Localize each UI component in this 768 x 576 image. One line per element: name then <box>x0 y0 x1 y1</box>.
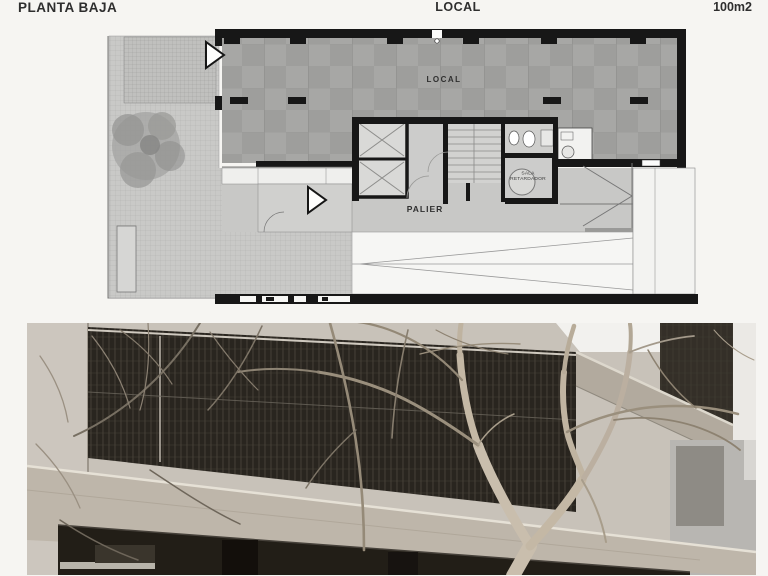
drawing-surface <box>0 0 768 576</box>
core-right-wall <box>553 117 558 160</box>
room-label-sala: SALA RETARDADOR <box>504 171 552 182</box>
room-label-local: LOCAL <box>418 75 470 84</box>
plan-area: 100m2 <box>713 0 752 16</box>
street-wall <box>215 294 698 304</box>
column-circle <box>435 39 439 43</box>
plan-subtitle: LOCAL <box>398 0 518 16</box>
building-photo <box>27 322 756 576</box>
plan-title: PLANTA BAJA <box>18 0 117 16</box>
planter <box>117 226 136 292</box>
canopy-hatch-area <box>124 37 216 103</box>
right-bay <box>633 168 695 294</box>
room-label-palier: PALIER <box>402 204 448 214</box>
core-left-wall <box>352 117 359 201</box>
top-wall-gap <box>432 30 442 38</box>
elevator-shafts <box>357 121 407 197</box>
room-lower-left <box>258 184 352 232</box>
utility-box <box>558 128 592 162</box>
lobby-area <box>407 124 448 200</box>
core-top-wall <box>352 117 558 124</box>
window-gap <box>642 160 660 166</box>
ramp-area <box>352 232 633 294</box>
room-label-sala-line2: RETARDADOR <box>504 176 552 181</box>
counter-strip <box>222 168 360 184</box>
page: PLANTA BAJA LOCAL 100m2 LOCAL PALIER SAL… <box>0 0 768 576</box>
bathroom <box>505 124 553 154</box>
floor-plan <box>108 29 698 304</box>
patio-grid-area <box>258 232 352 294</box>
